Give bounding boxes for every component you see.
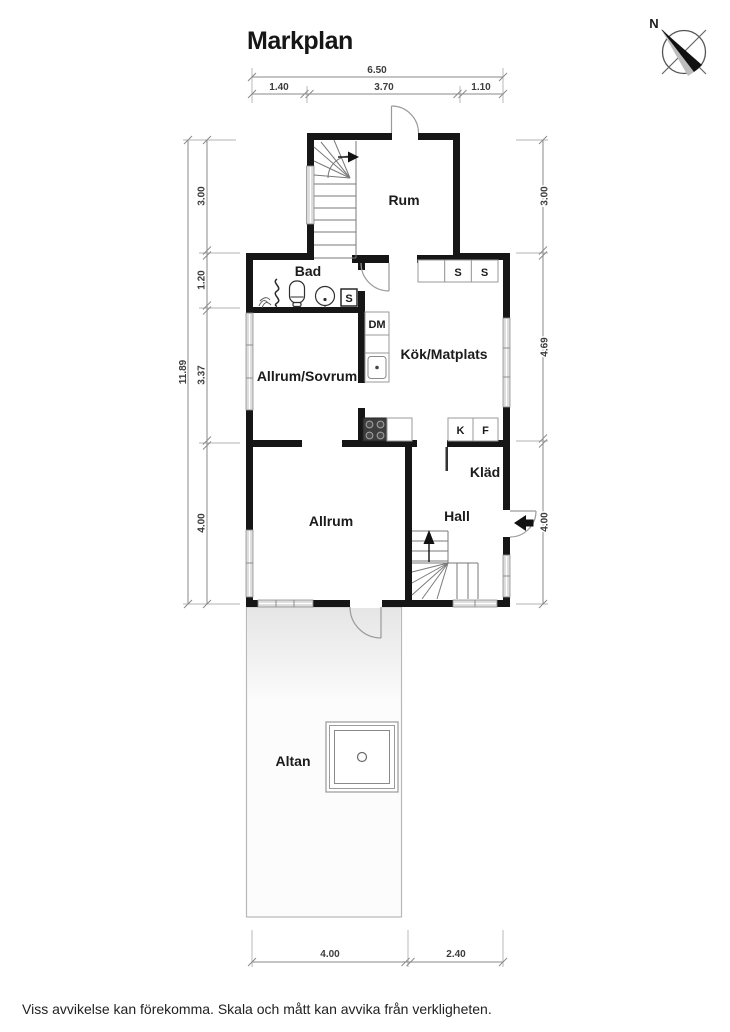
window-allrum-south bbox=[258, 600, 313, 607]
dim-top-total: 6.50 bbox=[367, 65, 387, 76]
dim-top-seg-1: 1.40 bbox=[269, 82, 289, 93]
dimensions-bottom: 4.00 2.40 bbox=[248, 930, 507, 967]
kitchen-cabinet-2-label: S bbox=[481, 267, 488, 279]
sink-round-icon bbox=[316, 287, 335, 309]
dim-left-seg-1: 3.00 bbox=[197, 186, 208, 206]
terrace-altan bbox=[247, 607, 402, 917]
kitchen-sink-icon bbox=[365, 353, 389, 382]
entrance-arrow-icon bbox=[514, 515, 534, 531]
dim-right-seg-3: 4.00 bbox=[540, 512, 551, 532]
dim-right-seg-1: 3.00 bbox=[540, 186, 551, 206]
kitchen-cabinet-1-label: S bbox=[454, 267, 461, 279]
stair-direction-arrow-icon bbox=[424, 530, 435, 562]
compass-north-label: N bbox=[649, 16, 658, 31]
dim-bottom-seg-1: 4.00 bbox=[320, 949, 340, 960]
freezer: F bbox=[473, 418, 498, 441]
plant-icon bbox=[259, 298, 271, 308]
room-label-allrum-sovrum: Allrum/Sovrum bbox=[257, 368, 357, 384]
room-label-allrum: Allrum bbox=[309, 513, 353, 529]
freezer-label: F bbox=[482, 425, 489, 437]
dishwasher: DM bbox=[365, 312, 389, 335]
room-label-altan: Altan bbox=[276, 753, 311, 769]
bathroom-cabinet-label: S bbox=[345, 293, 352, 305]
bathroom-cabinet: S bbox=[341, 289, 357, 306]
dimensions-left: 11.89 3.00 1.20 3.37 4.00 bbox=[178, 136, 240, 608]
terrace-table-icon bbox=[326, 722, 398, 792]
dim-right-seg-2: 4.69 bbox=[540, 337, 551, 357]
toilet-icon bbox=[290, 281, 305, 307]
room-label-klad: Kläd bbox=[470, 464, 500, 480]
dim-left-seg-4: 4.00 bbox=[197, 513, 208, 533]
door-landing-kitchen bbox=[361, 263, 389, 291]
compass-icon: N bbox=[649, 16, 706, 76]
page-title: Markplan bbox=[247, 27, 353, 55]
bathroom-fixtures: S bbox=[259, 279, 357, 309]
windows bbox=[246, 166, 510, 607]
floorplan-drawing: Markplan bbox=[0, 0, 730, 1032]
window-allrum-west bbox=[246, 530, 253, 597]
dim-left-seg-2: 1.20 bbox=[197, 270, 208, 290]
dim-left-seg-3: 3.37 bbox=[197, 365, 208, 385]
room-label-kok-matplats: Kök/Matplats bbox=[400, 346, 487, 362]
fridge: K bbox=[448, 418, 473, 441]
door-rum-north bbox=[392, 106, 419, 133]
staircase-upper bbox=[314, 140, 359, 258]
room-label-hall: Hall bbox=[444, 508, 470, 524]
window-hall-east bbox=[503, 555, 510, 597]
room-label-bad: Bad bbox=[295, 263, 321, 279]
dim-left-total: 11.89 bbox=[178, 359, 189, 384]
footer-disclaimer: Viss avvikelse kan förekomma. Skala och … bbox=[22, 1001, 492, 1017]
dim-bottom-seg-2: 2.40 bbox=[446, 949, 466, 960]
room-label-rum: Rum bbox=[388, 192, 419, 208]
fridge-label: K bbox=[457, 425, 465, 437]
radiator-icon bbox=[275, 279, 278, 307]
dimensions-right: 3.00 4.69 4.00 bbox=[516, 136, 551, 608]
staircase-lower bbox=[412, 530, 478, 599]
dishwasher-label: DM bbox=[368, 319, 385, 331]
dim-top-seg-3: 1.10 bbox=[471, 82, 491, 93]
window-hall-south bbox=[453, 600, 497, 607]
dimensions-top: 6.50 1.40 3.70 1.10 bbox=[248, 65, 507, 103]
window-sovrum-west bbox=[246, 313, 253, 410]
floorplan-page: Markplan bbox=[0, 0, 730, 1032]
dim-top-seg-2: 3.70 bbox=[374, 82, 394, 93]
window-kitchen-east bbox=[503, 318, 510, 407]
stove-icon bbox=[363, 418, 387, 441]
window-stair-west bbox=[307, 166, 315, 224]
